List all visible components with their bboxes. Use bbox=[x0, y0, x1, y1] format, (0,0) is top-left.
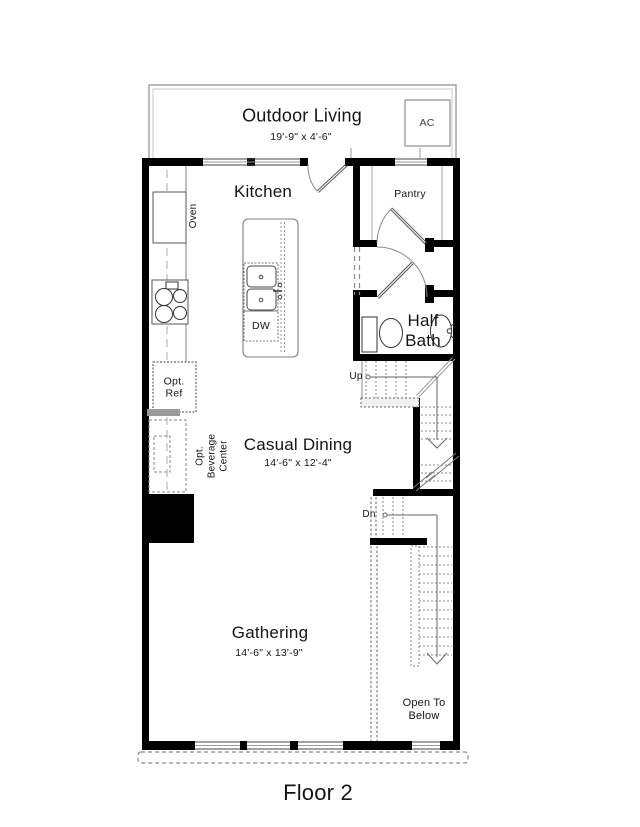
dn-path-arrow bbox=[383, 513, 447, 664]
casual-dining-label: Casual Dining bbox=[244, 435, 352, 455]
half-bath-label: Half Bath bbox=[405, 311, 441, 351]
floor-title: Floor 2 bbox=[283, 780, 353, 806]
fireplace-block bbox=[148, 494, 194, 543]
floor-plan: Outdoor Living 19'-9" x 4'-6" AC Kitchen… bbox=[0, 0, 640, 827]
ac-label: AC bbox=[420, 117, 435, 129]
outdoor-living-label: Outdoor Living bbox=[242, 105, 362, 126]
bath-door-swing bbox=[377, 247, 427, 299]
lower-floor-outline bbox=[138, 752, 468, 763]
pantry-label: Pantry bbox=[394, 188, 426, 200]
dishwasher-label: DW bbox=[252, 320, 270, 332]
stairs-up bbox=[361, 358, 459, 492]
opt-ref-label: Opt. Ref bbox=[164, 376, 185, 401]
opt-beverage-label: Opt. Beverage Center bbox=[194, 434, 229, 478]
cooktop-icon bbox=[152, 280, 188, 324]
oven-box bbox=[153, 192, 186, 243]
gathering-dims: 14'-6" x 13'-9" bbox=[235, 647, 303, 659]
kitchen-label: Kitchen bbox=[234, 182, 292, 202]
casual-dining-dims: 14'-6" x 12'-4" bbox=[264, 457, 332, 469]
kitchen-island bbox=[243, 219, 298, 357]
island-sink-icon bbox=[244, 263, 282, 311]
open-to-below-label: Open To Below bbox=[403, 697, 446, 723]
pantry-shelves bbox=[372, 166, 442, 240]
outdoor-living-dims: 19'-9" x 4'-6" bbox=[270, 131, 332, 143]
toilet-icon bbox=[362, 317, 403, 352]
gathering-label: Gathering bbox=[232, 623, 308, 643]
stairs-up-label: Up bbox=[349, 371, 362, 383]
hall-opening bbox=[355, 247, 360, 295]
stairs-down-label: Dn bbox=[362, 509, 375, 521]
pantry-door-swing bbox=[377, 208, 427, 245]
entry-door-swing bbox=[308, 164, 348, 193]
oven-label: Oven bbox=[188, 204, 200, 229]
counter-divider bbox=[147, 409, 180, 416]
